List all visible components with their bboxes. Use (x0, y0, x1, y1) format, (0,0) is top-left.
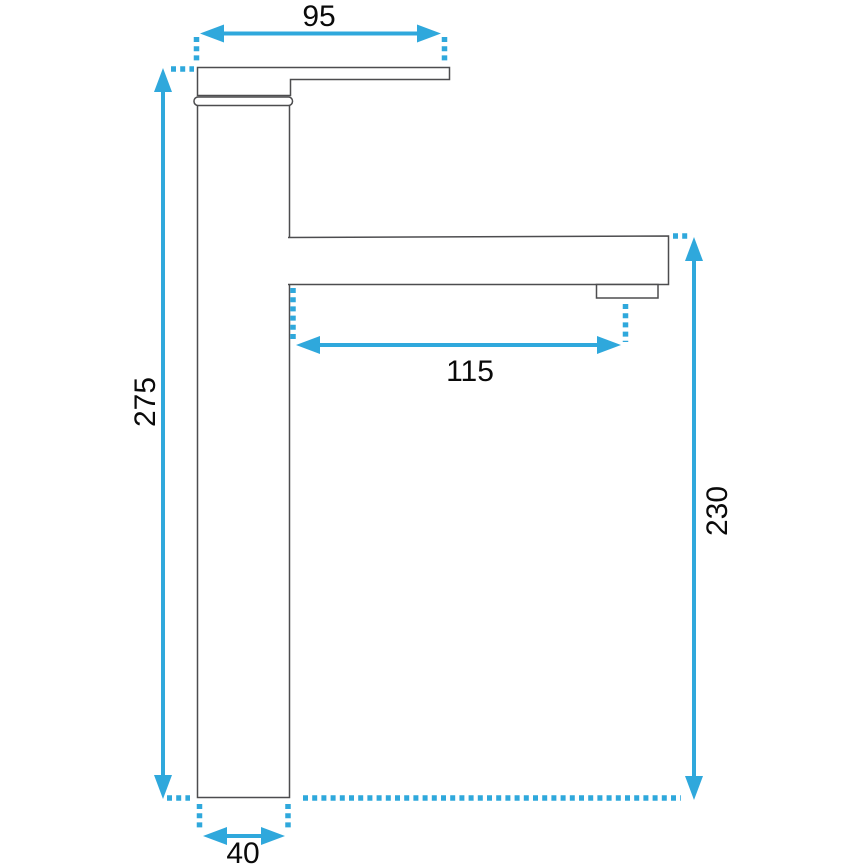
dimension-base-width: 40 (200, 804, 289, 868)
dimension-label: 40 (226, 837, 259, 868)
faucet-dimension-diagram: 95 275 115 230 40 (0, 0, 868, 868)
dimension-spout-reach: 115 (293, 288, 626, 388)
dimension-top-width: 95 (197, 0, 445, 62)
arrow-left-icon (200, 25, 224, 43)
faucet-handle-plate (198, 68, 450, 96)
faucet-body (198, 103, 290, 798)
dimension-label: 115 (446, 355, 494, 388)
faucet-outline (194, 68, 669, 798)
dimension-label: 230 (701, 486, 734, 536)
faucet-spout-outlet (597, 285, 659, 299)
dimension-total-height: 275 (129, 68, 194, 799)
arrow-up-icon (685, 237, 703, 261)
technical-drawing-canvas: 95 275 115 230 40 (0, 0, 868, 868)
dimension-label: 95 (302, 0, 335, 33)
arrow-down-icon (685, 776, 703, 800)
arrow-left-icon (203, 827, 227, 845)
arrow-left-icon (296, 336, 320, 354)
faucet-spout-arm (288, 236, 669, 285)
arrow-right-icon (417, 25, 441, 43)
faucet-collar (194, 97, 293, 106)
arrow-right-icon (597, 336, 621, 354)
arrow-right-icon (261, 827, 285, 845)
arrow-up-icon (154, 68, 172, 92)
dimension-label: 275 (129, 377, 162, 427)
dimension-spout-height: 230 (673, 236, 734, 800)
